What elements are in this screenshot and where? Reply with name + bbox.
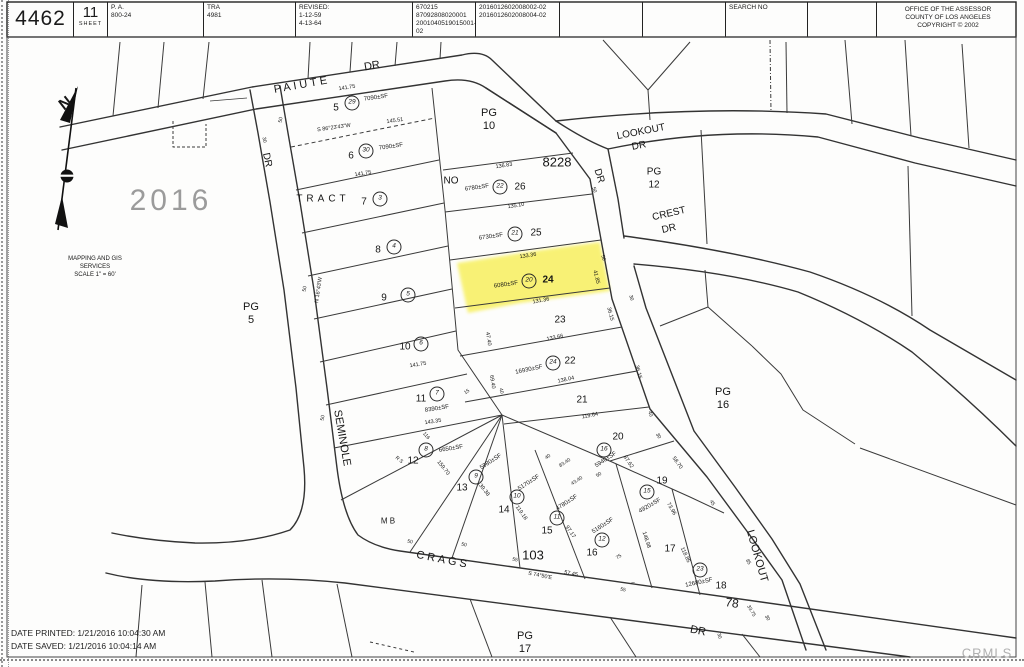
parcel-sequence-circle: 4: [387, 240, 402, 255]
parcel-number: 19: [656, 476, 667, 487]
parcel-sequence-circle: 21: [508, 227, 523, 242]
parcel-number: 17: [664, 544, 675, 555]
mb-label: M B: [381, 517, 395, 526]
gis-note: SERVICES: [80, 264, 110, 270]
parcel-number: 13: [456, 483, 467, 494]
dimension: 50: [461, 542, 468, 549]
parcel-sequence-circle: 12: [595, 533, 610, 548]
parcel-sequence-circle: 3: [373, 192, 388, 207]
parcel-sequence-circle: 9: [469, 470, 484, 485]
dimension: 50: [320, 415, 327, 422]
parcel-sequence-circle: 7: [430, 387, 445, 402]
date-saved: DATE SAVED: 1/21/2016 10:04:14 AM: [11, 641, 156, 651]
assessor-map-page: 4462 11 SHEET P. A. 800-24 TRA 4981 REVI…: [0, 0, 1024, 667]
dimension: 30: [627, 294, 634, 301]
parcel-number: 25: [530, 228, 541, 239]
page-ref: PG: [715, 386, 731, 398]
parcel-number: 9: [381, 293, 387, 304]
book-watermark: 2016: [130, 184, 213, 218]
page-ref: 16: [717, 399, 729, 411]
parcel-number: 10: [399, 342, 410, 353]
page-ref: PG: [647, 167, 661, 178]
dimension: 40: [498, 388, 505, 395]
tract-label: TRACT: [296, 194, 349, 205]
parcel-sequence-circle: 8: [419, 443, 434, 458]
page-ref: 17: [519, 643, 531, 655]
parcel-sequence-circle: 11: [550, 511, 565, 526]
parcel-number: 23: [554, 315, 565, 326]
parcel-number: 14: [498, 505, 509, 516]
lot-number: 103: [522, 548, 544, 563]
parcel-sequence-circle: 5: [401, 288, 416, 303]
parcel-number: 16: [586, 548, 597, 559]
page-ref: PG: [243, 301, 259, 313]
page-ref: PG: [481, 107, 497, 119]
gis-note: MAPPING AND GIS: [68, 256, 122, 262]
dimension: 30: [715, 633, 722, 640]
parcel-sequence-circle: 23: [693, 563, 708, 578]
lot-number: 78: [724, 595, 739, 611]
parcel-sequence-circle: 6: [414, 337, 429, 352]
parcel-sequence-circle: 29: [345, 96, 360, 111]
parcel-number: 15: [541, 526, 552, 537]
parcel-sequence-circle: 15: [640, 485, 655, 500]
page-bottom-edge: [0, 659, 1024, 661]
parcel-number: 8: [375, 245, 381, 256]
dimension: 50: [278, 117, 285, 124]
tract-label: NO: [444, 176, 459, 187]
map-linework: [0, 0, 1024, 667]
parcel-sequence-circle: 10: [510, 490, 525, 505]
date-printed: DATE PRINTED: 1/21/2016 10:04:30 AM: [11, 628, 165, 638]
parcel-number: 7: [361, 197, 367, 208]
parcel-number: 26: [514, 182, 525, 193]
dimension: 50: [599, 254, 606, 261]
parcel-sequence-circle: 16: [597, 443, 612, 458]
parcel-sequence-circle: 24: [546, 356, 561, 371]
page-ref: 5: [248, 314, 254, 326]
parcel-number: 21: [576, 395, 587, 406]
parcel-number: 20: [612, 432, 623, 443]
dimension: 50: [407, 539, 414, 546]
dimension: 50: [590, 186, 597, 193]
tick-mark: –: [631, 580, 634, 586]
page-ref: 12: [648, 180, 659, 191]
parcel-number: 18: [715, 581, 726, 592]
dimension: 50: [302, 286, 309, 293]
parcel-number: 5: [333, 103, 339, 114]
dimension: 30: [261, 137, 268, 144]
parcel-number: 12: [407, 456, 418, 467]
parcel-number-highlighted: 24: [542, 275, 553, 286]
tract-number: 8228: [543, 155, 572, 170]
parcel-number: 11: [416, 394, 426, 405]
parcel-sequence-circle: 30: [359, 144, 374, 159]
map-scale: SCALE 1" = 60': [74, 272, 115, 278]
dimension: 55: [512, 557, 519, 564]
parcel-sequence-circle: 22: [493, 180, 508, 195]
parcel-number: 22: [564, 356, 575, 367]
parcel-sequence-circle: 20: [522, 274, 537, 289]
dimension: 55: [620, 587, 627, 594]
page-ref: 10: [483, 120, 495, 132]
parcel-number: 6: [348, 151, 354, 162]
page-ref: PG: [517, 630, 533, 642]
